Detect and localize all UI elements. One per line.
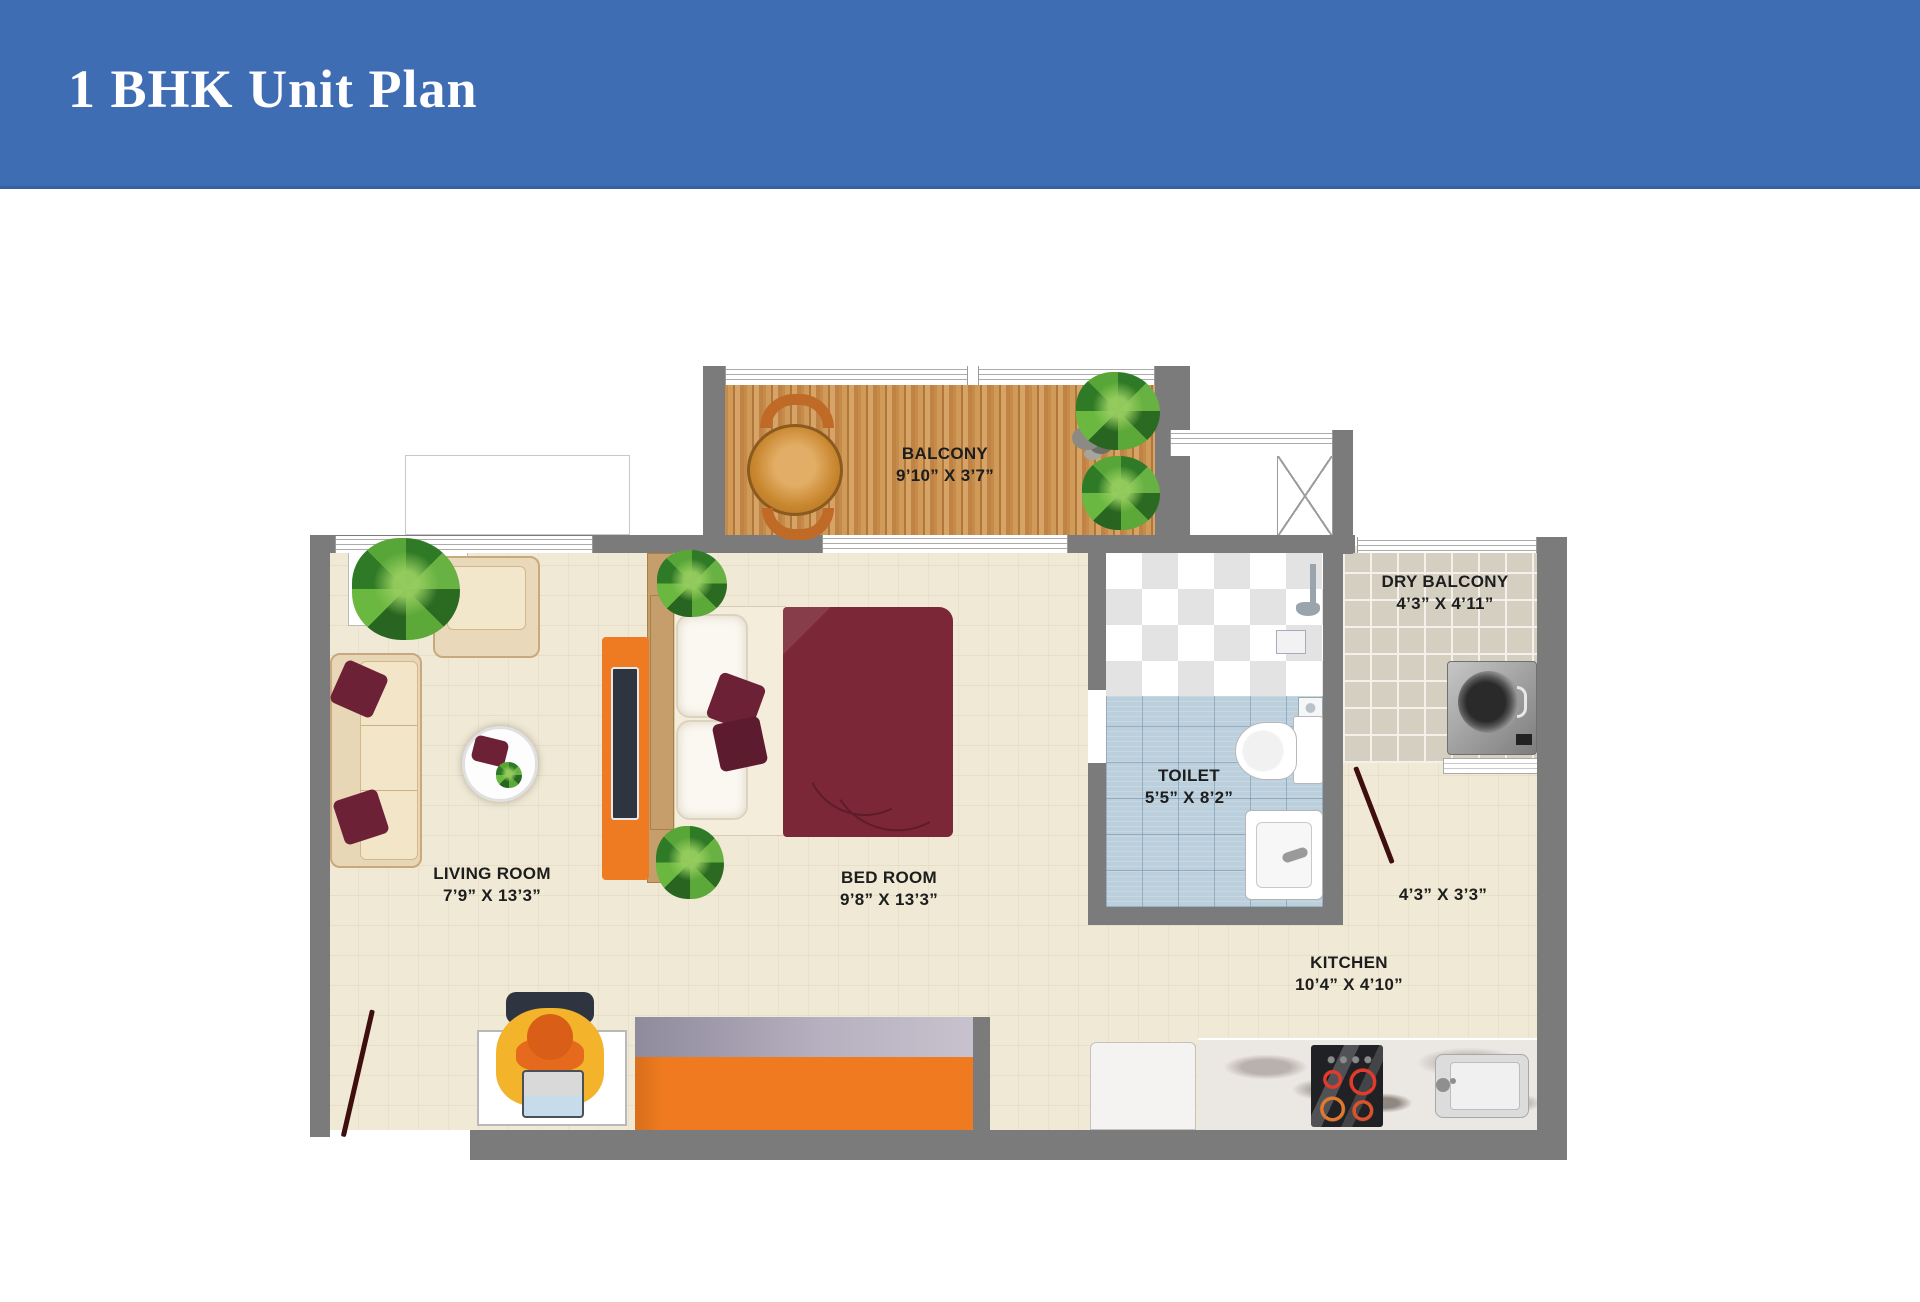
washing-machine-panel [1516, 734, 1532, 745]
bed-cushion-2 [712, 716, 769, 773]
label-balcony: BALCONY 9’10” X 3’7” [845, 443, 1045, 488]
label-bed-room: BED ROOM 9’8” X 13’3” [794, 867, 984, 912]
washing-machine-handle [1517, 686, 1527, 718]
balcony-plant-1 [1076, 372, 1160, 450]
wall-left [310, 535, 330, 1137]
balcony-table [747, 424, 843, 516]
entrance-opening [330, 1130, 470, 1160]
wc-tank [1293, 716, 1323, 784]
floor-plan: BALCONY 9’10” X 3’7” LIVING ROOM 7’9” X … [310, 366, 1570, 1166]
person-head [527, 1014, 573, 1060]
sink-faucet [1436, 1078, 1450, 1092]
laptop [522, 1070, 584, 1118]
duct-cross-box [1277, 455, 1333, 537]
label-living-room: LIVING ROOM 7’9” X 13’3” [397, 863, 587, 908]
label-kitchen: KITCHEN 10’4” X 4’10” [1254, 952, 1444, 997]
room-name: DRY BALCONY [1381, 572, 1508, 591]
room-dims: 4’3” X 4’11” [1396, 594, 1493, 613]
toilet-door-opening [1088, 690, 1106, 763]
living-room-plant [352, 538, 460, 640]
room-name: LIVING ROOM [433, 864, 551, 883]
wardrobe-top [635, 1017, 973, 1057]
label-toilet: TOILET 5’5” X 8’2” [1099, 765, 1279, 810]
shower-valve [1276, 630, 1306, 654]
room-dims: 5’5” X 8’2” [1145, 788, 1233, 807]
wall-bottom [470, 1130, 1567, 1160]
page-title: 1 BHK Unit Plan [68, 58, 478, 120]
stove [1311, 1045, 1383, 1127]
refrigerator [1090, 1042, 1196, 1130]
kitchen-sink-basin [1450, 1062, 1520, 1110]
tv-screen [611, 667, 639, 820]
coffee-table-plant [496, 762, 522, 788]
dry-balcony-shelf [1443, 758, 1540, 774]
label-passage-dims: 4’3” X 3’3” [1363, 884, 1523, 906]
room-dims: 4’3” X 3’3” [1399, 885, 1487, 904]
shower-head [1296, 602, 1320, 616]
room-dims: 9’8” X 13’3” [840, 890, 938, 909]
bedroom-plant-top [657, 550, 727, 617]
label-dry-balcony: DRY BALCONY 4’3” X 4’11” [1380, 571, 1510, 616]
room-name: KITCHEN [1310, 953, 1388, 972]
bed-headboard [650, 595, 674, 830]
room-dims: 9’10” X 3’7” [896, 466, 994, 485]
wall-stub-kitchen [973, 1017, 990, 1130]
toilet-shower-area [1106, 553, 1323, 696]
washing-machine-door [1458, 671, 1520, 733]
room-dims: 7’9” X 13’3” [443, 886, 541, 905]
wall-balcony-right [1155, 366, 1190, 546]
page: { "header": { "title": "1 BHK Unit Plan"… [0, 0, 1920, 1302]
wall-toilet-right [1323, 553, 1343, 925]
wall-toilet-bottom [1088, 907, 1343, 925]
room-dims: 10’4” X 4’10” [1295, 975, 1403, 994]
shaft-window-band [1170, 430, 1333, 456]
header-banner: 1 BHK Unit Plan [0, 0, 1920, 189]
wall-right [1537, 537, 1567, 1160]
bedroom-plant-bottom [656, 826, 724, 899]
dry-balcony-window [1357, 537, 1537, 553]
balcony-sliding-door [822, 535, 1068, 553]
wall-balcony-left [703, 366, 725, 538]
room-name: TOILET [1158, 766, 1220, 785]
balcony-plant-2 [1082, 456, 1160, 530]
balcony-railing-left [725, 366, 968, 385]
room-name: BED ROOM [841, 868, 937, 887]
projection-outline [405, 455, 630, 535]
wall-shaft-right [1333, 430, 1353, 554]
room-name: BALCONY [902, 444, 988, 463]
